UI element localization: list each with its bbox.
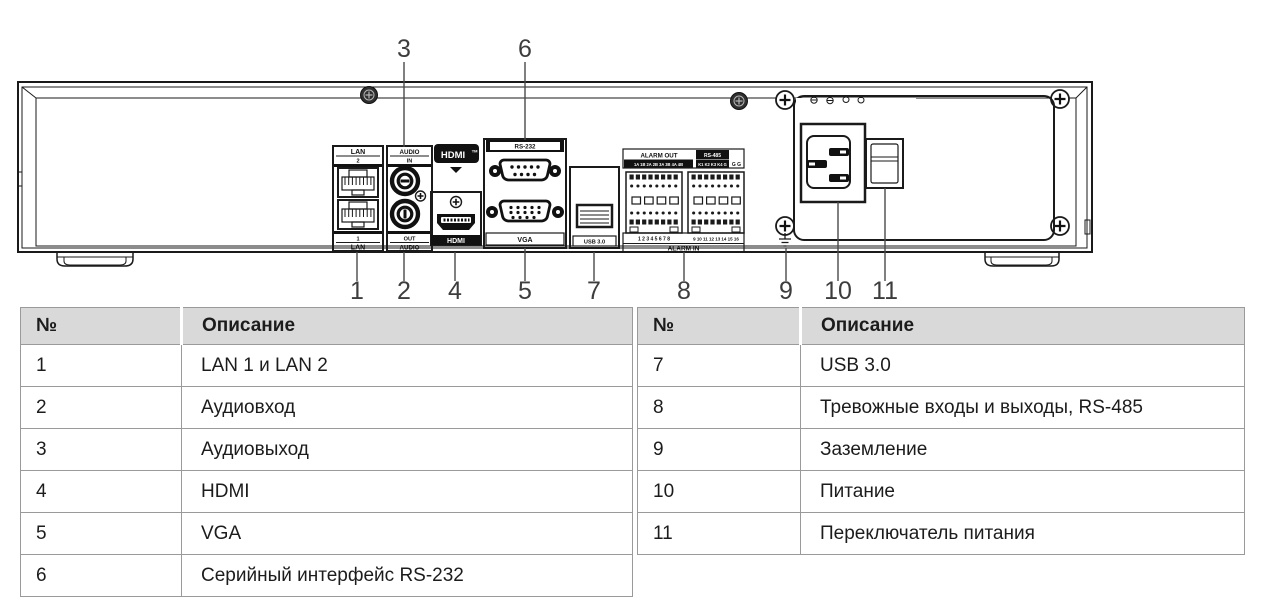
row-number: 10 xyxy=(638,471,801,513)
row-description: Аудиовход xyxy=(182,387,633,429)
usb-section: USB 3.0 xyxy=(570,167,619,248)
callout-6: 6 xyxy=(518,35,532,63)
callout-10: 10 xyxy=(824,277,852,302)
alarm-in-numbers-right: 9 10 11 12 13 14 15 16 xyxy=(693,237,739,242)
callout-11: 11 xyxy=(872,277,898,302)
rj45-port-2 xyxy=(338,168,378,197)
row-description: Переключатель питания xyxy=(801,513,1245,555)
row-number: 8 xyxy=(638,387,801,429)
hdmi-tm-text: TM xyxy=(472,148,478,153)
col-header-number: № xyxy=(638,308,801,345)
callout-1: 1 xyxy=(350,277,364,302)
lan-top-label: LAN xyxy=(351,149,365,156)
lan-top-num: 2 xyxy=(356,159,359,165)
alarm-out-label: ALARM OUT xyxy=(640,153,677,160)
rs485-label: RS-485 xyxy=(704,153,721,159)
description-table-right: № Описание 7USB 3.0 8Тревожные входы и в… xyxy=(637,307,1245,555)
lan-bottom-label: LAN xyxy=(351,245,365,252)
rs232-vga-section: RS-232 VGA xyxy=(484,139,566,248)
row-description: Серийный интерфейс RS-232 xyxy=(182,555,633,597)
audio-out-rca xyxy=(392,201,418,227)
row-description: Питание xyxy=(801,471,1245,513)
rs232-label: RS-232 xyxy=(515,144,537,151)
row-number: 9 xyxy=(638,429,801,471)
alarm-section: ALARM OUT RS-485 1A 1B 2A 2B 3A 3B 4A 4B… xyxy=(623,149,744,253)
audio-panel-screw xyxy=(416,191,426,201)
row-description: Аудиовыход xyxy=(182,429,633,471)
rs485-pin-labels: K1 K2 K3 K4 G xyxy=(698,162,727,167)
audio-in-rca xyxy=(392,168,418,194)
audio-top-label: AUDIO xyxy=(400,149,420,156)
rj45-port-1 xyxy=(338,200,378,229)
table-row: 1LAN 1 и LAN 2 xyxy=(21,345,633,387)
callout-5: 5 xyxy=(518,277,532,302)
torx-screw-top-mid xyxy=(731,93,748,110)
audio-in-label: IN xyxy=(407,159,413,165)
table-row: 4HDMI xyxy=(21,471,633,513)
callout-2: 2 xyxy=(397,277,411,302)
hdmi-logo-badge: HDMI TM xyxy=(434,144,479,173)
row-number: 2 xyxy=(21,387,182,429)
lan-bottom-num: 1 xyxy=(356,237,359,243)
table-header-row: № Описание xyxy=(21,308,633,345)
table-row: 8Тревожные входы и выходы, RS-485 xyxy=(638,387,1245,429)
usb-label: USB 3.0 xyxy=(584,240,605,246)
alarm-out-pin-labels: 1A 1B 2A 2B 3A 3B 4A 4B xyxy=(634,162,683,167)
row-number: 7 xyxy=(638,345,801,387)
row-number: 3 xyxy=(21,429,182,471)
manual-figure-rear-panel: LAN 2 1 LAN xyxy=(0,0,1265,602)
torx-screw-top-left xyxy=(361,87,378,104)
row-description: Тревожные входы и выходы, RS-485 xyxy=(801,387,1245,429)
vga-connector xyxy=(486,201,564,221)
hdmi-logo-text: HDMI xyxy=(441,150,465,161)
col-header-description: Описание xyxy=(182,308,633,345)
table-header-row: № Описание xyxy=(638,308,1245,345)
rs232-db9-connector xyxy=(489,160,561,180)
terminal-block-right xyxy=(688,172,744,233)
audio-bottom-label: AUDIO xyxy=(400,245,420,252)
chassis-foot-right xyxy=(985,252,1059,266)
ground-terminal-labels: G G xyxy=(732,162,741,168)
row-number: 11 xyxy=(638,513,801,555)
hdmi-receptacle xyxy=(437,214,475,230)
col-header-number: № xyxy=(21,308,182,345)
alarm-in-label: ALARM IN xyxy=(668,246,700,253)
hdmi-box-screw xyxy=(451,197,462,208)
table-row: 10Питание xyxy=(638,471,1245,513)
callout-3: 3 xyxy=(397,35,411,63)
vga-label: VGA xyxy=(517,237,532,244)
table-row: 11Переключатель питания xyxy=(638,513,1245,555)
description-table-left: № Описание 1LAN 1 и LAN 2 2Аудиовход 3Ау… xyxy=(20,307,633,597)
table-row: 9Заземление xyxy=(638,429,1245,471)
row-number: 6 xyxy=(21,555,182,597)
row-number: 1 xyxy=(21,345,182,387)
alarm-in-numbers-left: 1 2 3 4 5 6 7 8 xyxy=(638,237,670,243)
lan-ports: LAN 2 1 LAN xyxy=(333,146,383,252)
chassis-foot-left xyxy=(57,252,133,266)
hdmi-section: HDMI TM HDMI xyxy=(431,144,481,245)
hdmi-pointer-triangle xyxy=(450,167,462,173)
callout-9: 9 xyxy=(779,277,793,302)
usb-port xyxy=(577,205,612,227)
rear-panel-diagram: LAN 2 1 LAN xyxy=(0,0,1265,302)
hdmi-port-label: HDMI xyxy=(447,238,465,245)
callout-8: 8 xyxy=(677,277,691,302)
callout-4: 4 xyxy=(448,277,462,302)
table-row: 5VGA xyxy=(21,513,633,555)
row-description: LAN 1 и LAN 2 xyxy=(182,345,633,387)
row-description: USB 3.0 xyxy=(801,345,1245,387)
callout-7: 7 xyxy=(587,277,601,302)
row-description: Заземление xyxy=(801,429,1245,471)
audio-ports: AUDIO IN OUT AUDIO xyxy=(387,146,432,252)
table-row: 6Серийный интерфейс RS-232 xyxy=(21,555,633,597)
row-number: 5 xyxy=(21,513,182,555)
audio-out-label: OUT xyxy=(404,237,416,243)
table-row: 7USB 3.0 xyxy=(638,345,1245,387)
terminal-block-left xyxy=(626,172,682,233)
col-header-description: Описание xyxy=(801,308,1245,345)
row-description: HDMI xyxy=(182,471,633,513)
vent-grille xyxy=(794,96,1054,240)
row-number: 4 xyxy=(21,471,182,513)
row-description: VGA xyxy=(182,513,633,555)
table-row: 2Аудиовход xyxy=(21,387,633,429)
table-row: 3Аудиовыход xyxy=(21,429,633,471)
